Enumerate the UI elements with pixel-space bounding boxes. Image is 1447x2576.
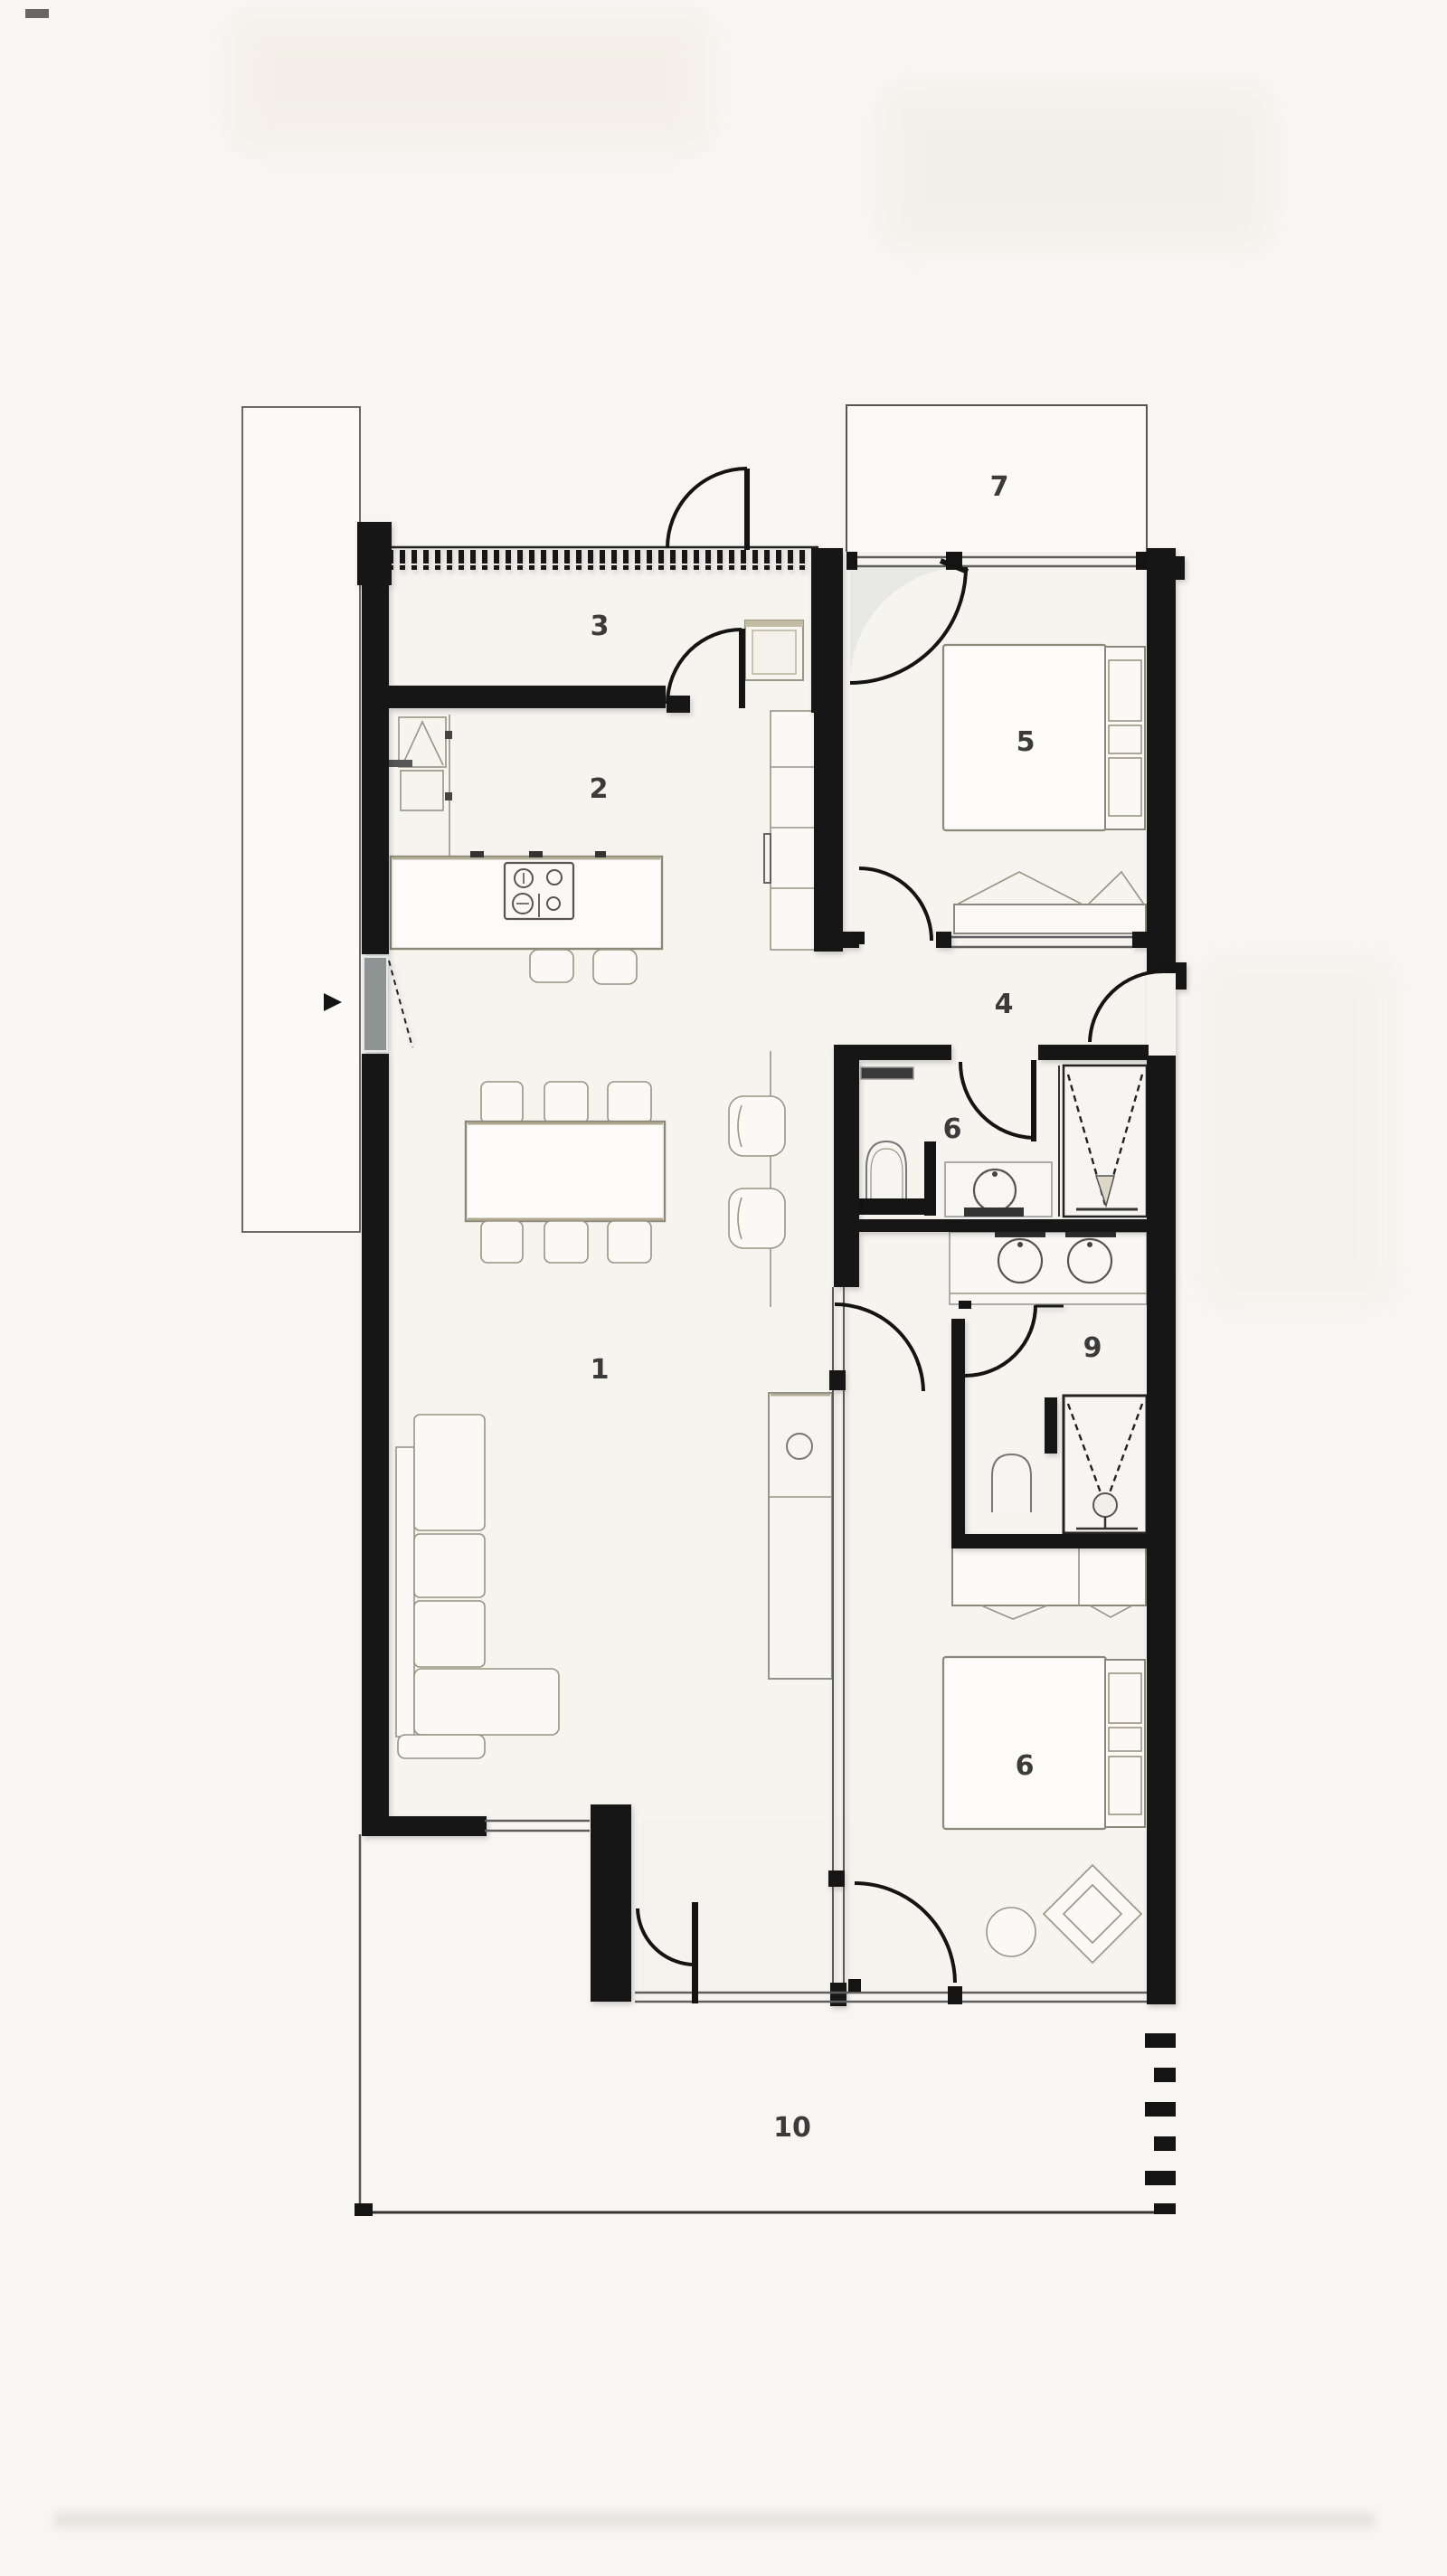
head-armchair — [729, 1189, 785, 1248]
entry-cabinet-top — [745, 620, 803, 627]
room-label-terrace-lower: 10 — [773, 2112, 811, 2144]
wall-entryhall-kitchen — [362, 686, 666, 708]
door-hinge-block — [848, 1979, 861, 1992]
shower-lower — [1064, 1396, 1147, 1535]
wall-kitchen-bedroom — [814, 713, 843, 952]
drain-icon — [1093, 1493, 1117, 1517]
sofa-seat — [414, 1601, 485, 1667]
wall-showerroom-stub — [1045, 1397, 1057, 1454]
room-label-corridor: 4 — [995, 989, 1014, 1020]
floor-plan-drawing: 1 2 3 4 5 6 7 9 6 10 — [0, 0, 1447, 2576]
wall-left-lower — [362, 1054, 389, 1820]
edge-dash — [1154, 2068, 1176, 2082]
dining-chair — [608, 1221, 651, 1263]
console-counter — [769, 1393, 832, 1679]
double-vanity — [950, 1228, 1147, 1304]
patio-door-leaf — [692, 1902, 698, 2003]
sofa-seat — [414, 1534, 485, 1597]
dining-table — [466, 1122, 665, 1221]
bathroom-door-leaf — [1031, 1060, 1036, 1141]
edge-dash — [1154, 2136, 1176, 2151]
room-label-bathroom: 6 — [943, 1113, 962, 1145]
room-label-living: 1 — [591, 1354, 610, 1386]
room-label-entry-hall: 3 — [591, 611, 610, 642]
dining-chair — [481, 1082, 523, 1123]
headboard — [1105, 647, 1145, 829]
wall-bedroom5-hall — [1132, 932, 1147, 948]
room-label-bedroom-lower: 6 — [1016, 1750, 1035, 1782]
glass-wall-stub — [829, 1370, 846, 1390]
island-handle — [595, 851, 606, 857]
bed — [943, 1657, 1145, 1829]
wall-top-left-corner — [357, 522, 392, 585]
island-handle — [529, 851, 543, 857]
edge-dash — [1145, 2102, 1176, 2117]
background-artifact — [235, 18, 705, 145]
floor-plan-canvas: 1 2 3 4 5 6 7 9 6 10 — [0, 0, 1447, 2576]
toilet-icon — [992, 1454, 1031, 1512]
counter-notch — [445, 731, 452, 739]
wall-bedroom5-hall — [936, 932, 951, 948]
background-artifact-mark — [25, 9, 49, 18]
sofa-seat — [414, 1415, 485, 1530]
room-label-shower-room: 9 — [1083, 1332, 1102, 1364]
headboard — [1105, 1660, 1145, 1827]
wall-showerroom-left — [951, 1319, 965, 1536]
wall-bathroom-vanity — [834, 1219, 1176, 1232]
sofa-chaise — [414, 1669, 559, 1735]
window-mullion — [846, 552, 857, 570]
wall-entry-right — [811, 548, 843, 713]
faucet-icon — [389, 760, 412, 767]
wall-living-bottom — [362, 1816, 485, 1836]
left-window-panel — [364, 957, 387, 1051]
room-label-kitchen: 2 — [590, 773, 609, 805]
edge-dash — [1145, 2171, 1176, 2185]
vanity-front — [964, 1207, 1024, 1217]
entry-top-door-swing — [667, 469, 747, 548]
wall-patio-connector — [591, 1804, 631, 2002]
bar-stool — [530, 950, 573, 982]
wall-shelf — [861, 1067, 913, 1079]
tap-dot — [1017, 1242, 1023, 1247]
dining-chair — [481, 1221, 523, 1263]
sofa-back — [396, 1447, 414, 1737]
wall-zone9-bottom — [951, 1534, 1176, 1548]
glazing-cap — [478, 1816, 487, 1836]
window-mullion — [1136, 552, 1147, 570]
sofa-ottoman — [398, 1735, 485, 1758]
room-label-bedroom-upper: 5 — [1017, 726, 1036, 758]
glass-wall-stub — [828, 1870, 845, 1887]
bathroom-vanity — [945, 1162, 1052, 1217]
entry-hall-furniture — [745, 620, 803, 680]
dining-chair — [544, 1082, 588, 1123]
room-label-terrace-upper: 7 — [990, 471, 1009, 503]
head-armchair — [729, 1096, 785, 1156]
bed — [943, 645, 1145, 830]
dining-chair — [608, 1082, 651, 1123]
driveway-strip — [242, 407, 360, 1232]
wall-hatched — [392, 550, 818, 570]
dining-chair — [544, 1221, 588, 1263]
door-hinge-block — [667, 696, 690, 713]
dashed-edge-strip — [1145, 2033, 1176, 2214]
entryhall-door-leaf — [739, 629, 745, 708]
counter-notch — [445, 792, 452, 800]
background-artifact — [886, 90, 1266, 244]
edge-dash — [1154, 2203, 1176, 2214]
entry-cabinet-inner — [752, 630, 796, 674]
window-mullion — [948, 1986, 962, 2004]
wall-hall-bathroom — [859, 1045, 951, 1060]
background-artifact-line — [54, 2513, 1375, 2527]
door-hinge-block — [852, 932, 865, 944]
bar-stool — [593, 950, 637, 984]
side-table — [987, 1908, 1036, 1956]
toilet-partition — [924, 1141, 936, 1216]
wall-right — [1147, 548, 1176, 2004]
island-handle — [470, 851, 484, 857]
background-artifact — [1203, 959, 1393, 1302]
edge-dash — [1145, 2033, 1176, 2048]
tap-dot — [992, 1171, 998, 1177]
wall-bathroom-left — [834, 1045, 859, 1287]
tap-dot — [1087, 1242, 1092, 1247]
entry-opening — [1147, 972, 1176, 1056]
door-hinge-block — [959, 1301, 971, 1309]
wall-tab — [1174, 556, 1185, 580]
entry-top-door-leaf — [744, 469, 750, 550]
wall-hall-bathroom — [1038, 1045, 1149, 1060]
floor-patio-nook — [631, 1818, 848, 1999]
shower-upper — [1059, 1065, 1147, 1217]
cooktop-icon — [505, 863, 573, 919]
mattress — [943, 1657, 1106, 1829]
terrace-corner-post — [355, 2203, 373, 2216]
wall-left-upper — [362, 583, 389, 954]
